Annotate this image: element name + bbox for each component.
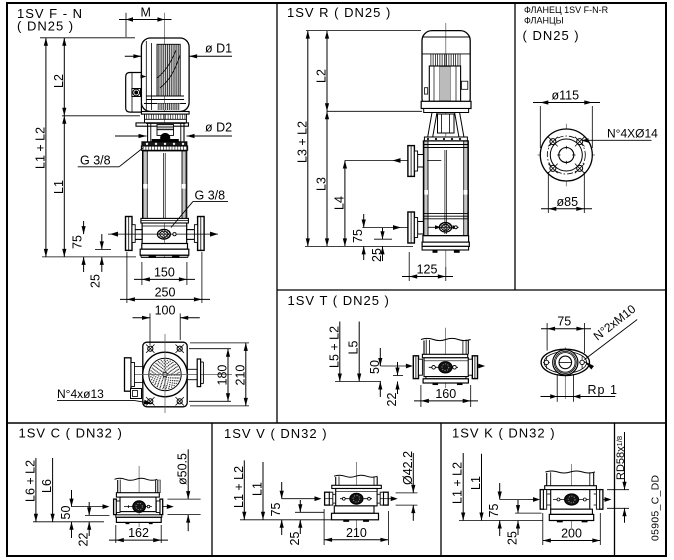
svg-text:75: 75 [71, 235, 85, 249]
svg-text:200: 200 [561, 527, 582, 541]
svg-text:L3 + L2: L3 + L2 [295, 121, 309, 163]
svg-text:05905_C_DD: 05905_C_DD [651, 475, 662, 541]
svg-text:L1 + L2: L1 + L2 [34, 127, 48, 169]
svg-text:L1: L1 [52, 180, 66, 194]
svg-text:50: 50 [368, 360, 382, 374]
svg-text:L1 + L2: L1 + L2 [451, 462, 465, 504]
svg-text:22: 22 [77, 533, 91, 547]
svg-text:25: 25 [506, 531, 520, 545]
svg-text:( DN25 ): ( DN25 ) [523, 28, 580, 43]
svg-text:M: M [141, 6, 151, 20]
svg-text:G 3/8: G 3/8 [80, 154, 111, 168]
svg-text:L2: L2 [315, 69, 329, 83]
svg-text:ø115: ø115 [552, 89, 580, 103]
svg-text:75: 75 [351, 229, 365, 243]
svg-text:L1: L1 [469, 476, 483, 490]
svg-text:75: 75 [487, 504, 501, 518]
svg-text:1SV K ( DN32 ): 1SV K ( DN32 ) [452, 426, 556, 441]
svg-text:22: 22 [385, 393, 399, 407]
svg-text:Rp 1: Rp 1 [588, 383, 618, 397]
svg-text:150: 150 [154, 266, 175, 280]
svg-text:50: 50 [59, 506, 73, 520]
svg-text:ø85: ø85 [557, 195, 579, 209]
svg-text:Ø42.2: Ø42.2 [401, 451, 415, 485]
svg-text:N°4XØ14: N°4XØ14 [607, 127, 658, 141]
svg-text:ФЛАНЕЦ 1SV F-N-R: ФЛАНЕЦ 1SV F-N-R [524, 5, 609, 15]
svg-text:G 3/8: G 3/8 [195, 189, 226, 203]
svg-text:L6 + L2: L6 + L2 [23, 460, 37, 502]
svg-text:ø D1: ø D1 [205, 42, 232, 56]
svg-text:180: 180 [216, 365, 230, 386]
svg-text:1SV R ( DN25 ): 1SV R ( DN25 ) [287, 5, 391, 20]
svg-text:160: 160 [435, 387, 456, 401]
svg-text:100: 100 [155, 304, 176, 318]
svg-text:ø50.5: ø50.5 [176, 453, 190, 485]
svg-text:ø D2: ø D2 [205, 121, 232, 135]
svg-text:L5 + L2: L5 + L2 [327, 326, 341, 368]
svg-text:L6: L6 [40, 479, 54, 493]
svg-text:250: 250 [155, 286, 176, 300]
svg-text:162: 162 [128, 526, 149, 540]
svg-text:L5: L5 [347, 341, 361, 355]
svg-text:75: 75 [557, 315, 571, 329]
svg-text:25: 25 [288, 532, 302, 546]
svg-text:210: 210 [346, 526, 367, 540]
svg-text:L2: L2 [52, 74, 66, 88]
svg-text:L1 + L2: L1 + L2 [232, 466, 246, 508]
svg-text:1SV V ( DN32 ): 1SV V ( DN32 ) [224, 426, 328, 441]
svg-text:210: 210 [233, 365, 247, 386]
svg-text:ФЛАНЦЫ: ФЛАНЦЫ [524, 16, 564, 26]
svg-text:L1: L1 [251, 482, 265, 496]
svg-text:25: 25 [89, 274, 103, 288]
svg-text:75: 75 [269, 503, 283, 517]
svg-text:L4: L4 [333, 196, 347, 210]
svg-text:1SV T ( DN25 ): 1SV T ( DN25 ) [288, 293, 390, 308]
svg-text:N°4xø13: N°4xø13 [57, 387, 104, 401]
svg-text:1SV C ( DN32 ): 1SV C ( DN32 ) [19, 426, 123, 441]
svg-text:L3: L3 [315, 177, 329, 191]
svg-text:125: 125 [417, 263, 438, 277]
svg-text:( DN25 ): ( DN25 ) [17, 19, 74, 34]
svg-text:25: 25 [370, 248, 384, 262]
